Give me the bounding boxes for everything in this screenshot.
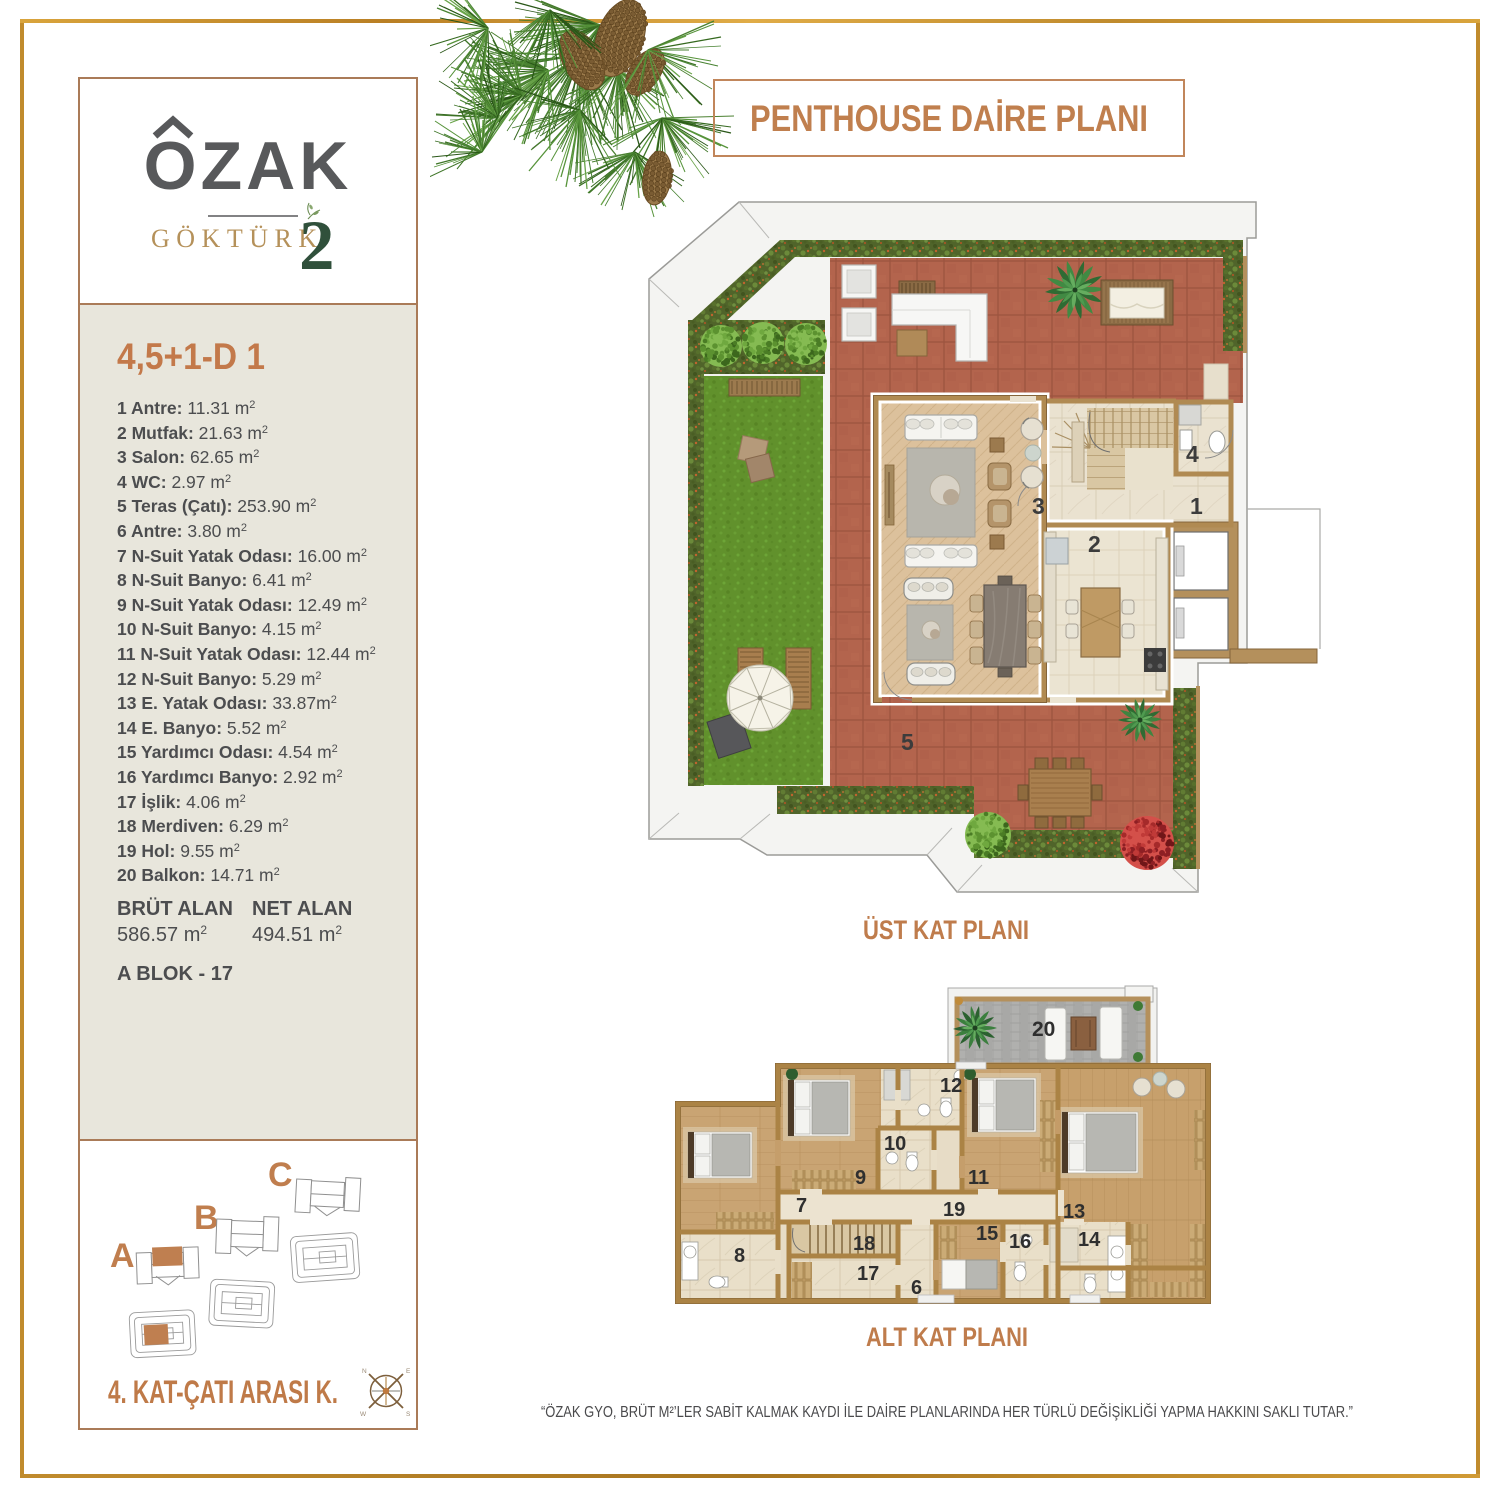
svg-text:N: N: [362, 1368, 367, 1375]
svg-text:10: 10: [884, 1133, 906, 1155]
svg-text:17: 17: [857, 1263, 879, 1285]
svg-text:20: 20: [1032, 1018, 1055, 1041]
svg-text:4,5+1-D 1: 4,5+1-D 1: [117, 336, 265, 377]
svg-text:S: S: [406, 1411, 411, 1418]
svg-text:9: 9: [855, 1167, 866, 1189]
svg-text:19: 19: [943, 1199, 965, 1221]
svg-text:ÜST KAT PLANI: ÜST KAT PLANI: [863, 915, 1029, 945]
svg-text:B: B: [194, 1199, 219, 1237]
svg-text:4: 4: [1186, 441, 1199, 467]
svg-text:3: 3: [1032, 493, 1045, 519]
svg-text:7: 7: [796, 1195, 807, 1217]
svg-text:A: A: [110, 1237, 135, 1275]
svg-text:“ÖZAK GYO, BRÜT M²’LER SABİT K: “ÖZAK GYO, BRÜT M²’LER SABİT KALMAK KAYD…: [541, 1403, 1353, 1421]
svg-text:PENTHOUSE DAİRE PLANI: PENTHOUSE DAİRE PLANI: [750, 98, 1148, 139]
svg-text:15: 15: [976, 1223, 998, 1245]
svg-text:4. KAT-ÇATI ARASI K.: 4. KAT-ÇATI ARASI K.: [108, 1374, 338, 1410]
svg-text:11: 11: [968, 1167, 989, 1189]
svg-text:8: 8: [734, 1245, 745, 1267]
svg-text:13: 13: [1063, 1201, 1085, 1223]
svg-text:6: 6: [911, 1277, 922, 1299]
svg-text:2: 2: [299, 207, 335, 285]
svg-text:E: E: [406, 1368, 411, 1375]
svg-text:12: 12: [940, 1075, 962, 1097]
svg-text:14: 14: [1078, 1229, 1101, 1251]
svg-text:18: 18: [853, 1233, 875, 1255]
svg-text:1: 1: [1190, 493, 1203, 519]
svg-text:C: C: [268, 1156, 293, 1194]
svg-text:5: 5: [901, 729, 914, 755]
svg-text:16: 16: [1009, 1231, 1031, 1253]
svg-text:GÖKTÜRK: GÖKTÜRK: [151, 224, 324, 253]
svg-text:2: 2: [1088, 531, 1101, 557]
svg-text:W: W: [360, 1411, 367, 1418]
svg-text:OZAK: OZAK: [144, 128, 353, 204]
svg-text:ALT KAT PLANI: ALT KAT PLANI: [866, 1322, 1028, 1352]
